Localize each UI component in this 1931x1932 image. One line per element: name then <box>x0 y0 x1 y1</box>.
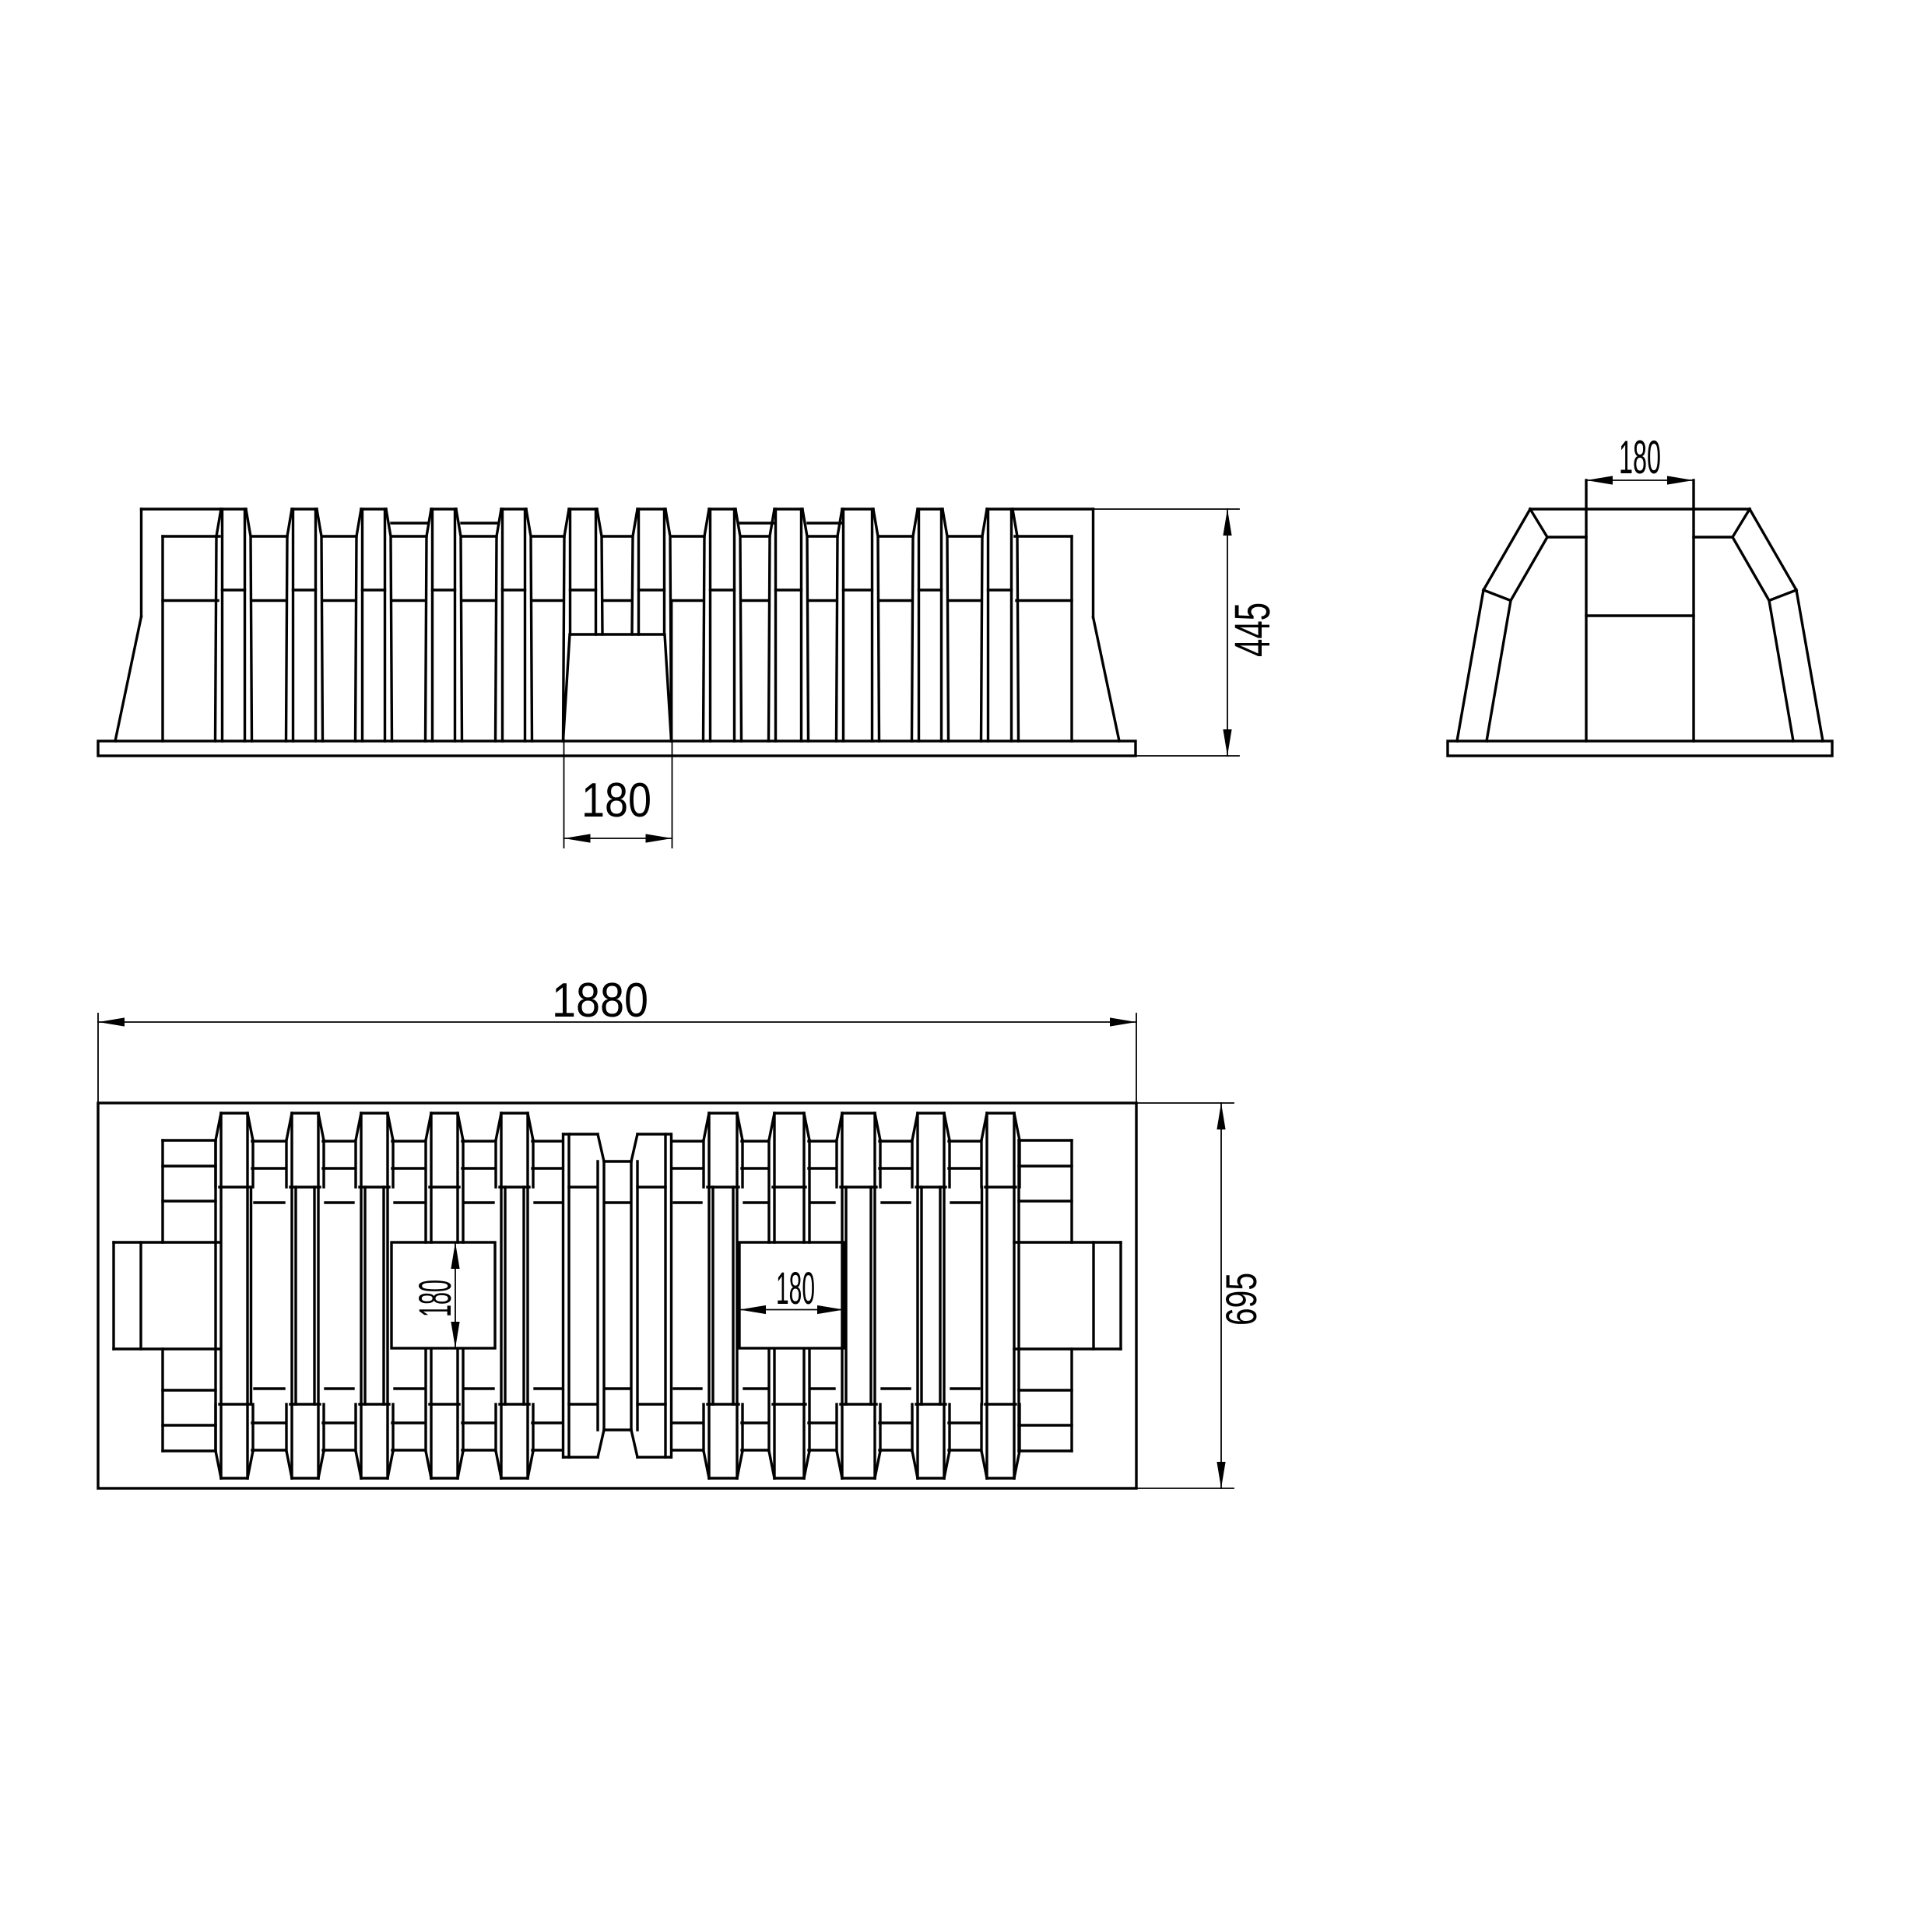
svg-text:180: 180 <box>1619 431 1661 483</box>
svg-text:445: 445 <box>1224 602 1280 657</box>
svg-text:695: 695 <box>1217 1273 1266 1326</box>
svg-text:1880: 1880 <box>552 974 648 1027</box>
svg-text:180: 180 <box>776 1263 815 1314</box>
svg-text:180: 180 <box>581 774 651 827</box>
svg-text:180: 180 <box>410 1280 461 1317</box>
